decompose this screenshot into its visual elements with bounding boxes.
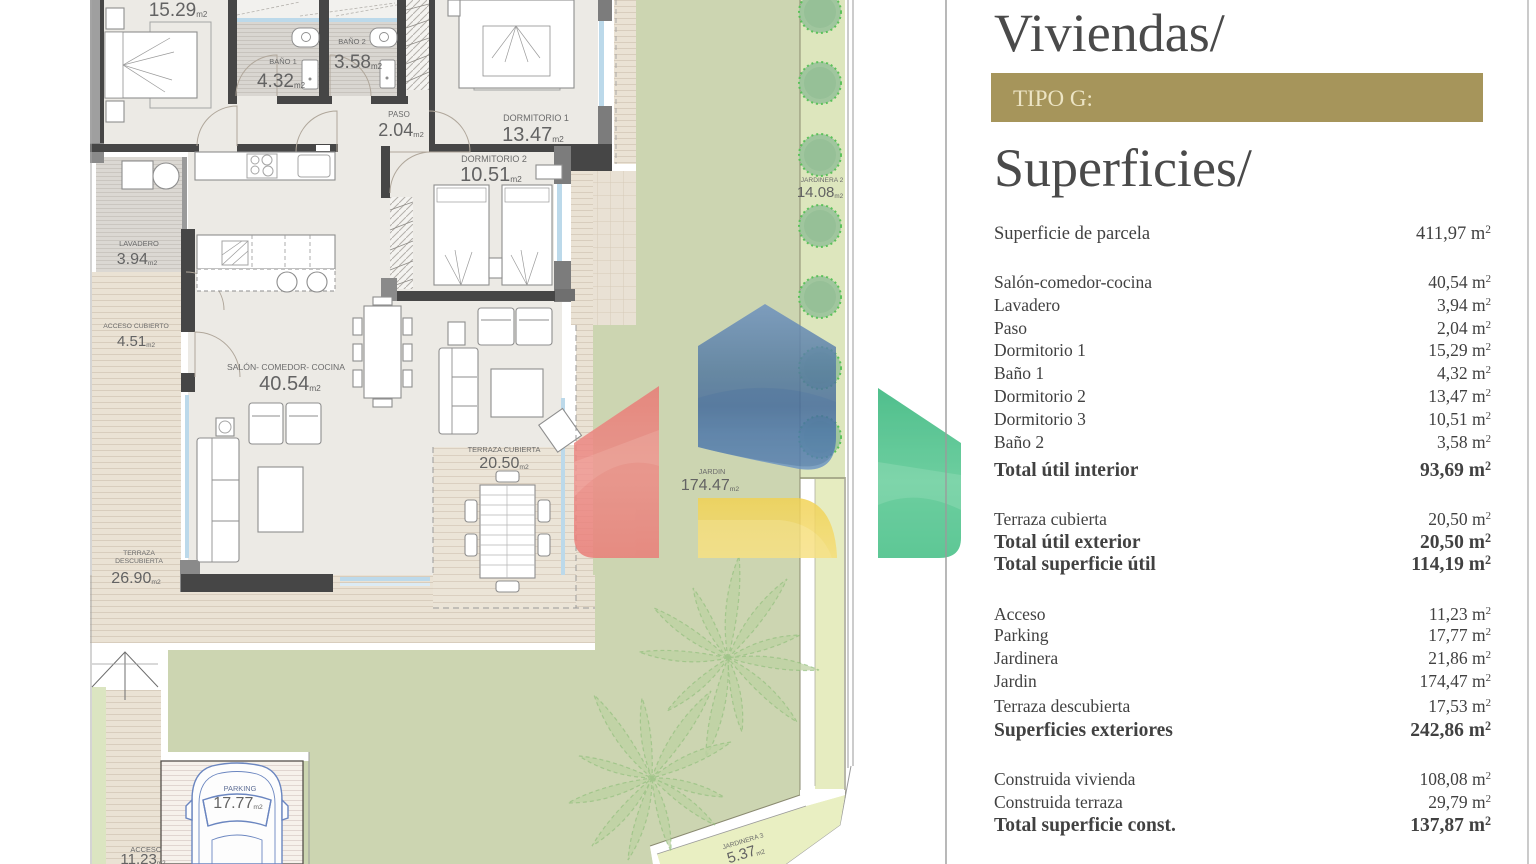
svg-text:13,47 m2: 13,47 m2 bbox=[1428, 386, 1491, 406]
svg-text:BAÑO 2: BAÑO 2 bbox=[338, 37, 366, 46]
svg-text:PASO: PASO bbox=[388, 110, 410, 119]
svg-text:137,87 m2: 137,87 m2 bbox=[1410, 814, 1491, 836]
svg-text:4,32 m2: 4,32 m2 bbox=[1437, 363, 1491, 383]
svg-text:TIPO G:: TIPO G: bbox=[1013, 86, 1093, 111]
svg-text:Superficie de parcela: Superficie de parcela bbox=[994, 224, 1150, 244]
svg-text:Dormitorio 2: Dormitorio 2 bbox=[994, 386, 1086, 406]
svg-text:174,47 m2: 174,47 m2 bbox=[1419, 671, 1491, 691]
svg-text:10,51 m2: 10,51 m2 bbox=[1428, 409, 1491, 429]
svg-text:LAVADERO: LAVADERO bbox=[119, 239, 159, 248]
svg-text:Jardin: Jardin bbox=[994, 671, 1037, 691]
svg-text:TERRAZA CUBIERTA: TERRAZA CUBIERTA bbox=[468, 445, 541, 454]
svg-text:11,23 m2: 11,23 m2 bbox=[1429, 604, 1491, 624]
svg-text:BAÑO 1: BAÑO 1 bbox=[269, 57, 297, 66]
svg-text:DESCUBIERTA: DESCUBIERTA bbox=[115, 558, 163, 565]
svg-text:411,97 m2: 411,97 m2 bbox=[1416, 224, 1491, 244]
svg-text:Acceso: Acceso bbox=[994, 604, 1046, 624]
svg-text:Terraza cubierta: Terraza cubierta bbox=[994, 509, 1107, 529]
svg-text:20,50 m2: 20,50 m2 bbox=[1428, 509, 1491, 529]
svg-text:Viviendas/: Viviendas/ bbox=[994, 3, 1225, 63]
svg-text:SALÓN- COMEDOR- COCINA: SALÓN- COMEDOR- COCINA bbox=[227, 362, 345, 372]
svg-text:Baño 2: Baño 2 bbox=[994, 432, 1044, 452]
svg-text:Paso: Paso bbox=[994, 318, 1027, 338]
svg-text:ACCESO CUBIERTO: ACCESO CUBIERTO bbox=[103, 323, 168, 330]
svg-text:Salón-comedor-cocina: Salón-comedor-cocina bbox=[994, 272, 1152, 292]
svg-text:Construida terraza: Construida terraza bbox=[994, 792, 1123, 812]
svg-text:Terraza descubierta: Terraza descubierta bbox=[994, 696, 1130, 716]
svg-text:DORMITORIO 1: DORMITORIO 1 bbox=[503, 113, 569, 123]
svg-text:Superficies exteriores: Superficies exteriores bbox=[994, 720, 1173, 741]
svg-text:Parking: Parking bbox=[994, 625, 1049, 645]
svg-text:Total útil exterior: Total útil exterior bbox=[994, 532, 1141, 553]
svg-text:TERRAZA: TERRAZA bbox=[123, 550, 155, 557]
svg-text:Baño 1: Baño 1 bbox=[994, 363, 1044, 383]
svg-text:Dormitorio 3: Dormitorio 3 bbox=[994, 409, 1086, 429]
svg-text:Lavadero: Lavadero bbox=[994, 295, 1060, 315]
svg-text:PARKING: PARKING bbox=[224, 784, 257, 793]
svg-text:Jardinera: Jardinera bbox=[994, 648, 1058, 668]
svg-text:JARDIN: JARDIN bbox=[699, 467, 726, 476]
svg-text:Total útil interior: Total útil interior bbox=[994, 460, 1139, 481]
svg-text:2,04 m2: 2,04 m2 bbox=[1437, 318, 1491, 338]
svg-text:JARDINERA 2: JARDINERA 2 bbox=[801, 177, 844, 184]
svg-text:3,58 m2: 3,58 m2 bbox=[1437, 432, 1491, 452]
svg-text:242,86 m2: 242,86 m2 bbox=[1410, 719, 1491, 741]
svg-text:20,50 m2: 20,50 m2 bbox=[1420, 531, 1491, 553]
svg-text:Total superficie const.: Total superficie const. bbox=[994, 815, 1176, 836]
svg-text:29,79 m2: 29,79 m2 bbox=[1428, 792, 1491, 812]
svg-text:Total superficie útil: Total superficie útil bbox=[994, 554, 1156, 575]
svg-text:108,08 m2: 108,08 m2 bbox=[1419, 769, 1491, 789]
svg-text:93,69 m2: 93,69 m2 bbox=[1420, 459, 1491, 481]
svg-text:40,54 m2: 40,54 m2 bbox=[1428, 272, 1491, 292]
svg-text:17,53 m2: 17,53 m2 bbox=[1428, 696, 1491, 716]
svg-text:Construida vivienda: Construida vivienda bbox=[994, 769, 1136, 789]
svg-text:21,86 m2: 21,86 m2 bbox=[1428, 648, 1491, 668]
svg-text:Superficies/: Superficies/ bbox=[994, 138, 1252, 198]
svg-text:3,94 m2: 3,94 m2 bbox=[1437, 295, 1491, 315]
svg-text:Dormitorio 1: Dormitorio 1 bbox=[994, 340, 1086, 360]
svg-text:DORMITORIO 2: DORMITORIO 2 bbox=[461, 154, 527, 164]
svg-text:17,77 m2: 17,77 m2 bbox=[1428, 625, 1491, 645]
svg-text:15,29 m2: 15,29 m2 bbox=[1428, 340, 1491, 360]
svg-text:114,19 m2: 114,19 m2 bbox=[1411, 553, 1491, 575]
